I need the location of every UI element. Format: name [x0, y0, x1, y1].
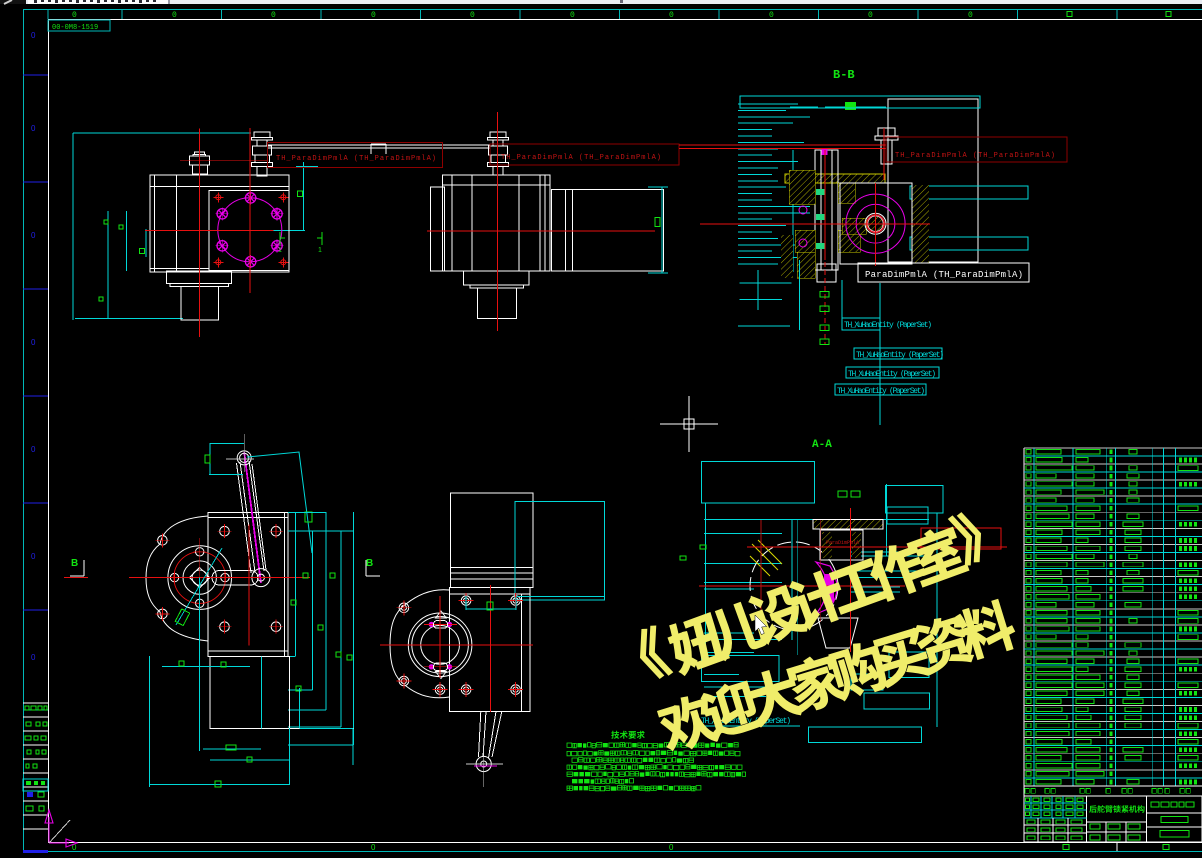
svg-text:B: B	[366, 558, 373, 569]
svg-text:0: 0	[172, 11, 177, 20]
svg-text:0: 0	[868, 11, 873, 20]
svg-text:TH_ParaDimPmlA (TH_ParaDimPmlA: TH_ParaDimPmlA (TH_ParaDimPmlA)	[501, 154, 661, 162]
svg-text:0: 0	[31, 552, 36, 561]
svg-text:0: 0	[470, 11, 475, 20]
svg-text:0: 0	[271, 11, 276, 20]
svg-text:ParaDimPmlA (TH_ParaDimPmlA): ParaDimPmlA (TH_ParaDimPmlA)	[865, 270, 1023, 280]
svg-text:1: 1	[318, 247, 322, 254]
svg-text:0: 0	[968, 11, 973, 20]
svg-text:TH_ParaDimPmlA (TH_ParaDimPmlA: TH_ParaDimPmlA (TH_ParaDimPmlA)	[276, 155, 436, 163]
svg-text:TH_XuHaoEntity (PaperSet): TH_XuHaoEntity (PaperSet)	[844, 321, 932, 330]
svg-text:0: 0	[371, 11, 376, 20]
svg-text:0: 0	[31, 653, 36, 662]
svg-text:0: 0	[72, 11, 77, 20]
svg-text:0: 0	[31, 445, 36, 454]
svg-text:0: 0	[669, 843, 674, 852]
svg-text:0: 0	[570, 11, 575, 20]
svg-text:1: 1	[278, 247, 282, 254]
svg-text:0: 0	[371, 843, 376, 852]
svg-text:B-B: B-B	[833, 68, 855, 82]
svg-text:0: 0	[31, 338, 36, 347]
svg-text:0: 0	[31, 31, 36, 40]
svg-text:A-A: A-A	[812, 439, 832, 451]
svg-text:0: 0	[769, 11, 774, 20]
svg-text:B: B	[71, 558, 78, 569]
svg-text:0: 0	[669, 11, 674, 20]
svg-text:00-0M8-1519: 00-0M8-1519	[52, 24, 98, 32]
svg-text:0: 0	[31, 231, 36, 240]
svg-text:TH_ParaDimPmlA (TH_ParaDimPmlA: TH_ParaDimPmlA (TH_ParaDimPmlA)	[895, 152, 1055, 160]
svg-text:ParaDimPmlA: ParaDimPmlA	[826, 540, 859, 546]
svg-text:0: 0	[31, 124, 36, 133]
